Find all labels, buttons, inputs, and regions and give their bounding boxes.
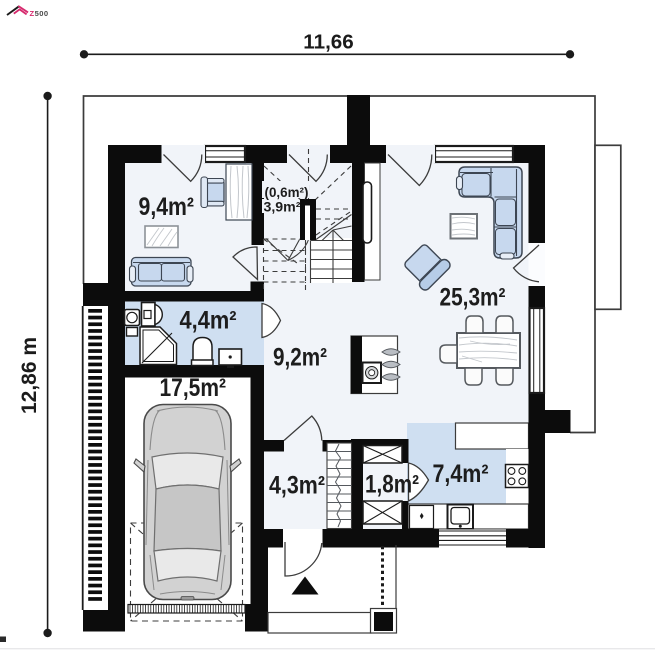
svg-text:4,4m²: 4,4m² [180, 307, 237, 335]
svg-text:4,3m²: 4,3m² [269, 472, 325, 500]
svg-text:9,4m²: 9,4m² [139, 193, 195, 221]
svg-text:7,4m²: 7,4m² [433, 460, 489, 488]
svg-text:25,3m²: 25,3m² [440, 284, 506, 312]
svg-text:9,2m²: 9,2m² [273, 344, 327, 372]
svg-text:17,5m²: 17,5m² [160, 374, 227, 402]
svg-text:500: 500 [35, 9, 49, 18]
svg-text:1,8m²: 1,8m² [365, 471, 419, 499]
svg-text:12,86 m: 12,86 m [18, 337, 41, 414]
svg-text:3,9m²: 3,9m² [264, 199, 301, 215]
svg-text:11,66: 11,66 [303, 30, 354, 53]
